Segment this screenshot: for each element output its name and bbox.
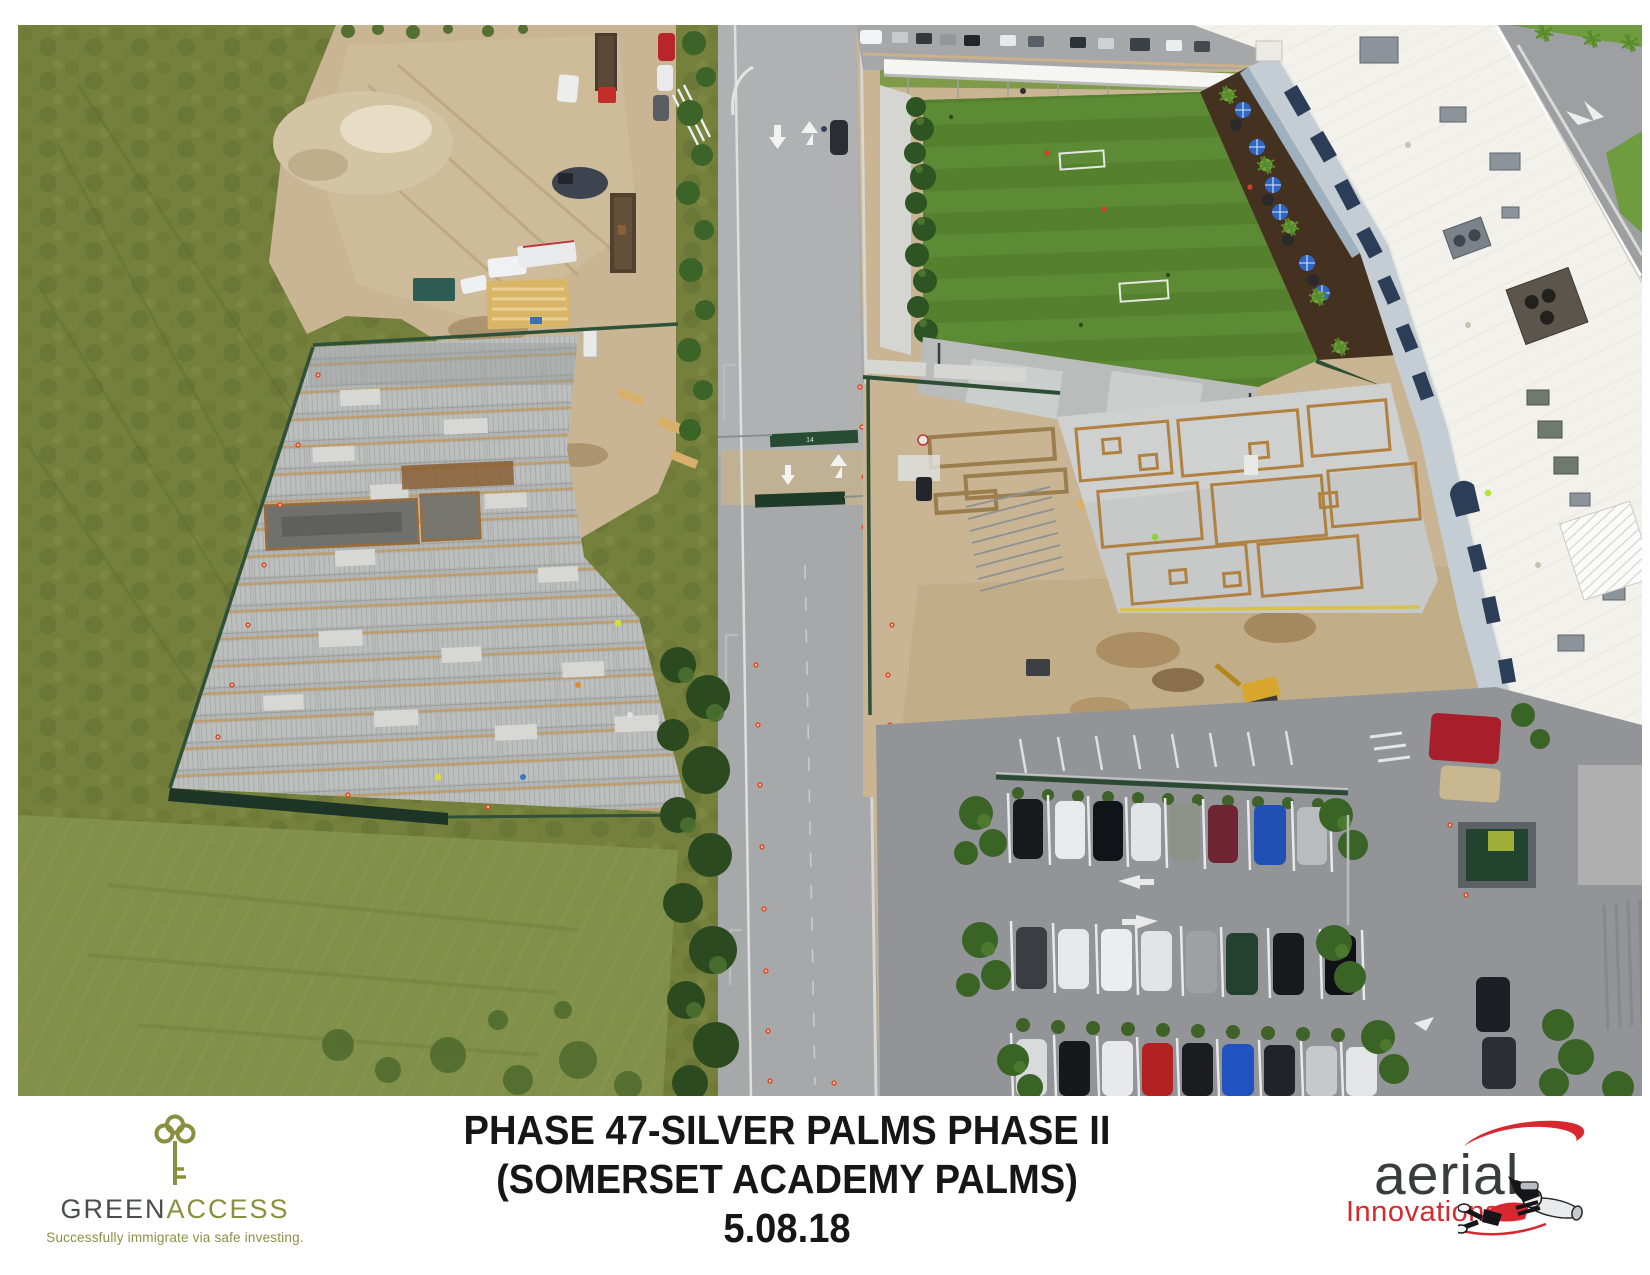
utility-cart — [916, 477, 932, 501]
tan-car — [1439, 765, 1501, 803]
parked-car — [1476, 977, 1510, 1032]
person-under-canopy — [1020, 88, 1026, 94]
sidewalk — [880, 85, 911, 355]
brand-access: ACCESS — [166, 1194, 289, 1224]
parked-car — [1482, 1037, 1516, 1089]
flying-photographer-icon — [1458, 1172, 1594, 1242]
greenaccess-tagline: Successfully immigrate via safe investin… — [40, 1230, 310, 1245]
site-office-shed — [486, 279, 570, 330]
dumpster-enclosure — [1458, 822, 1536, 888]
photo-title: PHASE 47-SILVER PALMS PHASE II (SOMERSET… — [430, 1106, 1144, 1253]
title-line-2: (SOMERSET ACADEMY PALMS) — [455, 1155, 1119, 1204]
greenaccess-wordmark: GREENACCESS — [40, 1194, 310, 1225]
parked-cars-row3 — [1016, 1039, 1377, 1096]
worker — [1152, 534, 1159, 541]
caption-band: GREENACCESS Successfully immigrate via s… — [0, 1096, 1650, 1275]
aerial-photo-illustration: 14 — [18, 25, 1642, 1096]
aerial-photo: 14 — [18, 25, 1642, 1096]
access-road: 14 — [718, 25, 880, 1096]
title-line-1: PHASE 47-SILVER PALMS PHASE II — [455, 1106, 1119, 1155]
pedestrian — [821, 126, 827, 132]
progress-photo-page: 14 — [0, 0, 1650, 1275]
construction-slab-right — [1057, 383, 1438, 613]
red-pickup-truck — [1428, 713, 1501, 765]
key-icon — [147, 1114, 203, 1192]
sand-pile — [273, 91, 453, 195]
brand-green: GREEN — [60, 1194, 166, 1224]
parking-lot — [876, 687, 1642, 1096]
compact-machine — [1026, 659, 1050, 676]
car-on-road — [830, 120, 848, 155]
title-date: 5.08.18 — [455, 1204, 1119, 1253]
aerial-innovations-logo: aerial Innovations — [1330, 1096, 1630, 1275]
worker-on-roof — [1485, 490, 1492, 497]
gate-number: 14 — [806, 437, 814, 444]
porta-potty — [583, 330, 597, 357]
greenaccess-logo: GREENACCESS Successfully immigrate via s… — [40, 1096, 310, 1275]
